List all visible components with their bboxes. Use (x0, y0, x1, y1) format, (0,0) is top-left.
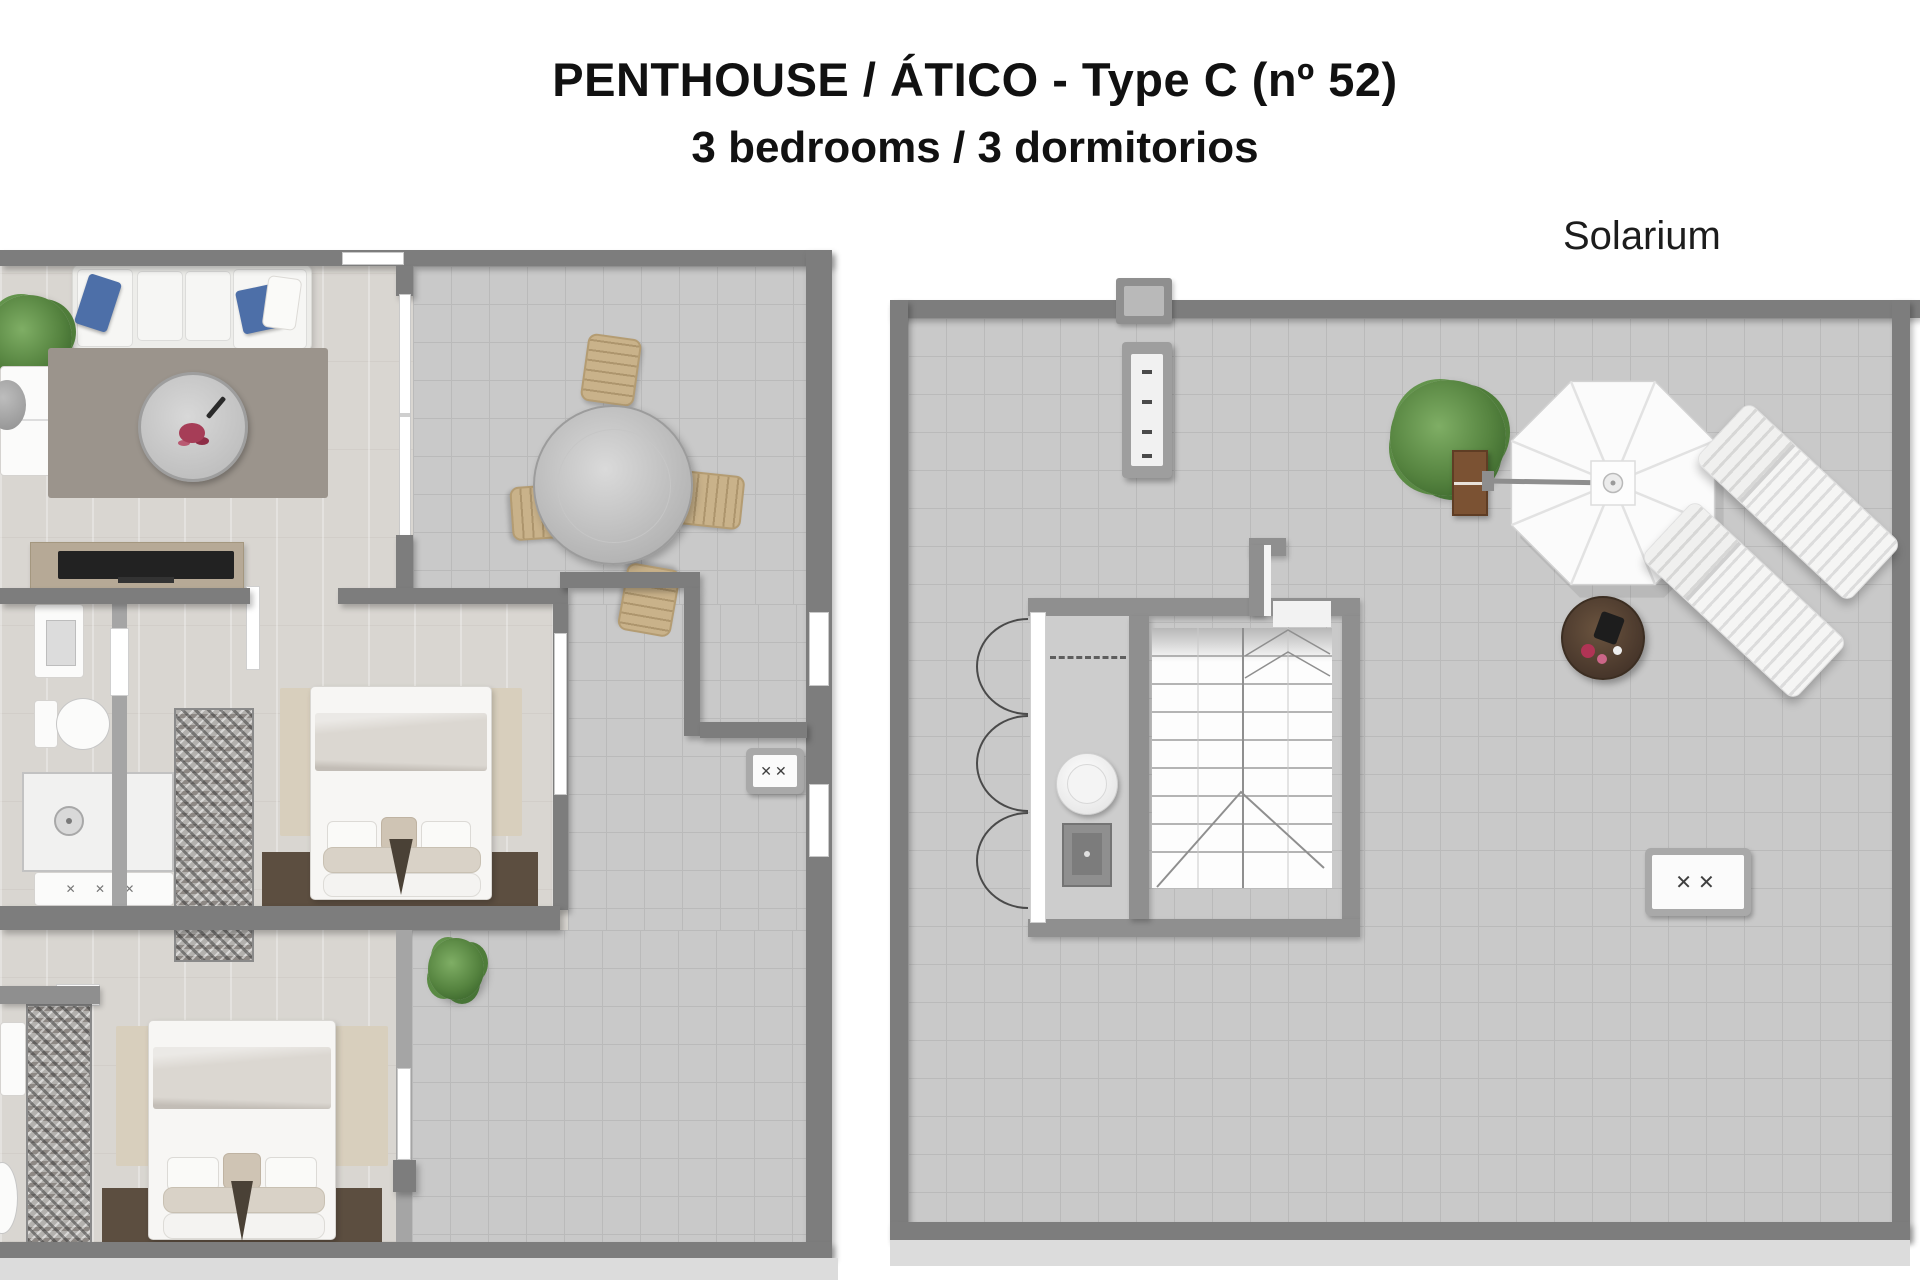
shower-head (54, 806, 84, 836)
bed-blanket (315, 713, 487, 771)
counter-dashed-line (1050, 656, 1126, 659)
solarium-wall-bottom (890, 1222, 1910, 1240)
bedroom2-wardrobe (26, 1004, 92, 1244)
bench-slat (1142, 430, 1152, 434)
folding-door-jamb (1030, 612, 1046, 923)
railing-stub (1249, 545, 1264, 616)
rooftop-unit-inner (1124, 286, 1164, 316)
twig-decor (206, 396, 227, 419)
white-decor (1613, 646, 1622, 655)
bench-slat (1142, 370, 1152, 374)
wall-right (806, 250, 832, 1258)
faucet-icons: ✕ ✕ ✕ (35, 873, 173, 905)
hall-door (110, 628, 129, 696)
rooftop-unit (1116, 278, 1172, 324)
wall-bedroom2-stub (0, 986, 100, 1004)
wicker-table (1561, 596, 1645, 680)
table-ring (1067, 764, 1107, 804)
wall-bedroom1-top (338, 588, 568, 604)
pink-decor (1597, 654, 1607, 664)
bedroom2-shelf (0, 1022, 26, 1096)
wall-bedroom2-corner (393, 1160, 416, 1192)
stair-wall-right (1342, 616, 1360, 919)
solarium-wall-left (890, 300, 908, 1240)
sofa-seat (185, 271, 231, 341)
sink-basin (46, 620, 76, 666)
toilet-bowl (56, 698, 110, 750)
red-decor (1581, 644, 1595, 658)
tv-screen (58, 551, 234, 579)
window-bedroom1 (554, 633, 567, 795)
wall-terrace-step-v (684, 588, 700, 736)
sink-dot (1084, 851, 1090, 857)
stair-inner-wall (1129, 616, 1149, 919)
plant-terrace (428, 938, 484, 1000)
bench-slat (1142, 400, 1152, 404)
toilet-tank (34, 700, 58, 748)
bed-blanket (153, 1047, 331, 1109)
railing-stub-glass (1264, 545, 1271, 616)
bed-guest (148, 1020, 336, 1240)
wall-bedrooms-divider (0, 906, 560, 930)
bathtub: ✕ ✕ ✕ (34, 872, 174, 906)
solarium-wall-top (890, 300, 1920, 318)
window-bedroom2 (397, 1068, 411, 1160)
sink-unit (1062, 823, 1112, 887)
sofa-seat (137, 271, 183, 341)
stair-wall-bottom (1028, 919, 1360, 937)
flower-decor (179, 423, 205, 443)
ground-strip (0, 1258, 838, 1280)
wall-terrace-step-h (560, 572, 700, 588)
ac-vent-solarium: ✕✕ (1645, 848, 1751, 916)
bed-master (310, 686, 492, 900)
dining-chair-north (580, 333, 643, 408)
bench (1122, 342, 1172, 478)
solarium-plan: ✕✕ (845, 0, 1920, 1280)
wall-top (0, 250, 832, 266)
shower-head-dot (66, 818, 72, 824)
window-top (342, 252, 404, 265)
bench-slat (1142, 454, 1152, 458)
wall-bottom (0, 1242, 832, 1258)
terrace-glass-door (399, 294, 411, 537)
table-inner-ring (557, 429, 671, 543)
solarium-wall-right (1892, 300, 1910, 1240)
window-right-2 (809, 784, 829, 857)
floorplan-page: PENTHOUSE / ÁTICO - Type C (nº 52) 3 bed… (0, 0, 1920, 1280)
vent-cross-icon: ✕✕ (1645, 848, 1751, 916)
glass-mullion (400, 413, 410, 417)
sofa-pillow (262, 275, 303, 331)
apartment-plan: ✕ ✕ ✕ (0, 0, 845, 1280)
solarium-ground-strip (890, 1240, 1910, 1266)
wall-divider-bottom (396, 535, 413, 588)
bed-pillow (265, 1157, 317, 1191)
bag-decor (1593, 611, 1625, 646)
dining-table (533, 405, 693, 565)
round-table-top (1056, 753, 1118, 815)
ac-vent-terrace: ✕✕ (746, 748, 804, 794)
bathroom-sink (34, 604, 84, 678)
tv-stand (118, 577, 174, 583)
stairs (1149, 616, 1342, 919)
stair-landing-notch (1273, 601, 1331, 627)
window-right-1 (809, 612, 829, 686)
sofa (72, 264, 312, 352)
bed-pillow (167, 1157, 219, 1191)
wall-terrace-lower (700, 722, 807, 738)
wall-divider-top (396, 266, 413, 296)
vent-cross-icon: ✕✕ (746, 748, 804, 794)
wall-living-bath (0, 588, 250, 604)
shower (22, 772, 174, 872)
coffee-table (138, 372, 248, 482)
